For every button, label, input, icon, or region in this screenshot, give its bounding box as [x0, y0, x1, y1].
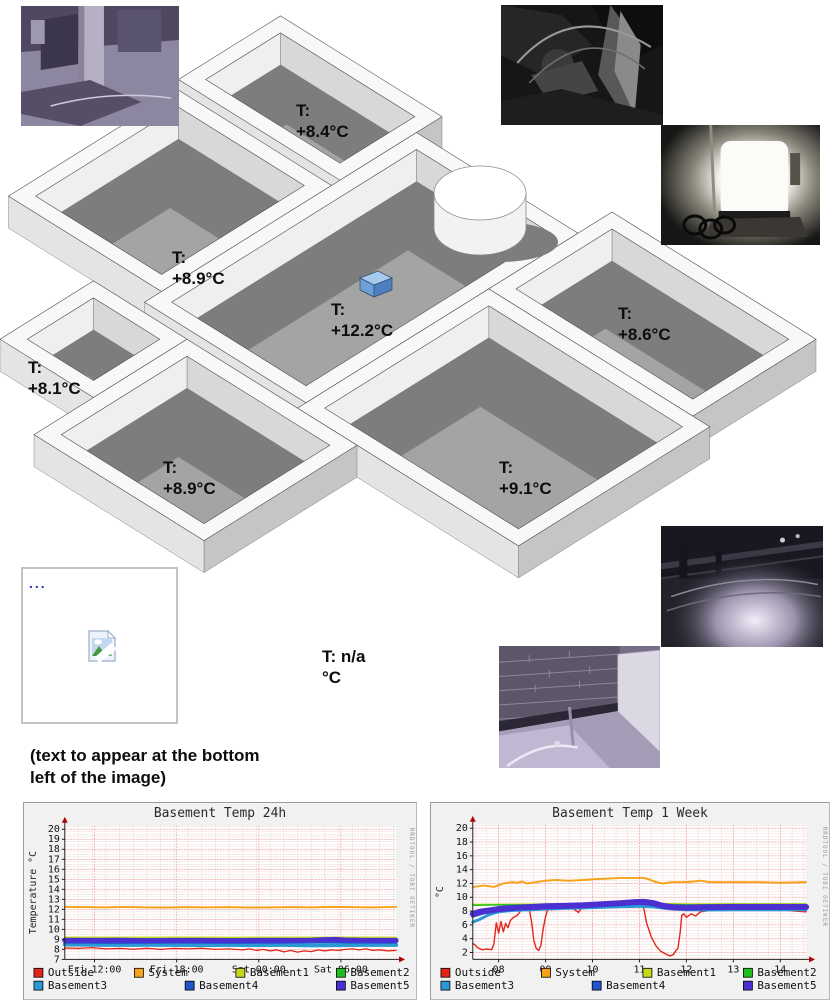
svg-text:12: 12 — [48, 904, 60, 915]
svg-text:20: 20 — [48, 824, 60, 835]
svg-text:Basement1: Basement1 — [250, 966, 309, 979]
svg-text:Basement4: Basement4 — [606, 979, 666, 992]
webcam-image-brick-wall — [499, 646, 660, 768]
svg-text:10: 10 — [456, 892, 468, 903]
svg-text:19: 19 — [48, 834, 60, 845]
svg-text:13: 13 — [727, 964, 739, 975]
webcam-image-pipes — [501, 5, 663, 125]
svg-text:Basement3: Basement3 — [455, 979, 514, 992]
svg-text:Basement5: Basement5 — [350, 979, 409, 992]
svg-text:Basement2: Basement2 — [350, 966, 409, 979]
webcam-photo — [21, 6, 179, 126]
svg-text:Basement2: Basement2 — [757, 966, 816, 979]
svg-text:6: 6 — [462, 920, 468, 931]
svg-text:RRDTOOL / TOBI OETIKER: RRDTOOL / TOBI OETIKER — [408, 828, 415, 928]
svg-text:Basement Temp 1 Week: Basement Temp 1 Week — [552, 806, 708, 821]
broken-image-icon — [87, 629, 117, 663]
bottom-left-caption: (text to appear at the bottom left of th… — [30, 745, 260, 789]
room-temp-label-86: T:+8.6°C — [618, 303, 671, 345]
svg-text:8: 8 — [462, 906, 468, 917]
svg-text:Temperature °C: Temperature °C — [28, 851, 39, 934]
svg-text:12: 12 — [456, 878, 468, 889]
svg-text:2: 2 — [462, 947, 468, 958]
svg-text:System: System — [555, 966, 595, 979]
svg-text:Basement5: Basement5 — [757, 979, 816, 992]
svg-text:13: 13 — [48, 894, 60, 905]
broken-image-placeholder: ... — [21, 567, 178, 724]
svg-text:RRDTOOL / TOBI OETIKER: RRDTOOL / TOBI OETIKER — [821, 827, 828, 927]
svg-text:17: 17 — [48, 854, 60, 865]
svg-text:Basement3: Basement3 — [48, 979, 107, 992]
broken-image-alt-link[interactable]: ... — [29, 575, 47, 591]
svg-text:Basement1: Basement1 — [657, 966, 716, 979]
svg-text:8: 8 — [54, 944, 60, 955]
room-temp-label-84: T:+8.4°C — [296, 100, 349, 142]
room-temp-label-89a: T:+8.9°C — [172, 247, 225, 289]
chart-basement-temp-24h: 7891011121314151617181920Fri 12:00Fri 18… — [23, 802, 417, 1000]
svg-text:9: 9 — [54, 934, 60, 945]
room-temp-label-81: T:+8.1°C — [28, 357, 81, 399]
svg-text:16: 16 — [48, 864, 60, 875]
room-temp-label-na: T: n/a°C — [322, 646, 365, 688]
webcam-image-crawlspace — [661, 526, 823, 647]
svg-text:Basement Temp 24h: Basement Temp 24h — [154, 806, 286, 821]
svg-text:4: 4 — [462, 934, 468, 945]
webcam-image-pillar — [21, 6, 179, 126]
chart-1week-svg: 246810121416182008091011121314Basement T… — [431, 803, 829, 999]
webcam-image-heater — [661, 125, 820, 245]
svg-text:10: 10 — [48, 924, 60, 935]
chart-24h-svg: 7891011121314151617181920Fri 12:00Fri 18… — [24, 803, 416, 999]
room-temp-label-122: T:+12.2°C — [331, 299, 393, 341]
svg-text:15: 15 — [48, 874, 60, 885]
svg-text:Outside: Outside — [455, 966, 501, 979]
svg-text:11: 11 — [48, 914, 60, 925]
svg-text:14: 14 — [456, 865, 468, 876]
chart-basement-temp-1week: 246810121416182008091011121314Basement T… — [430, 802, 830, 1000]
svg-text:20: 20 — [456, 823, 468, 834]
room-temp-label-89b: T:+8.9°C — [163, 457, 216, 499]
svg-text:°C: °C — [435, 886, 446, 898]
basement-dashboard: T:+8.4°C T:+8.9°C T:+12.2°C T:+8.6°C T:+… — [0, 0, 838, 1006]
webcam-photo — [501, 5, 663, 125]
svg-text:7: 7 — [54, 954, 60, 965]
webcam-photo — [661, 125, 820, 245]
webcam-photo — [661, 526, 823, 647]
room-temp-label-91: T:+9.1°C — [499, 457, 552, 499]
svg-text:14: 14 — [48, 884, 60, 895]
svg-text:18: 18 — [456, 837, 468, 848]
svg-text:Outside: Outside — [48, 966, 94, 979]
svg-text:System: System — [148, 966, 188, 979]
svg-text:Basement4: Basement4 — [199, 979, 259, 992]
svg-text:16: 16 — [456, 851, 468, 862]
webcam-photo — [499, 646, 660, 768]
svg-text:18: 18 — [48, 844, 60, 855]
